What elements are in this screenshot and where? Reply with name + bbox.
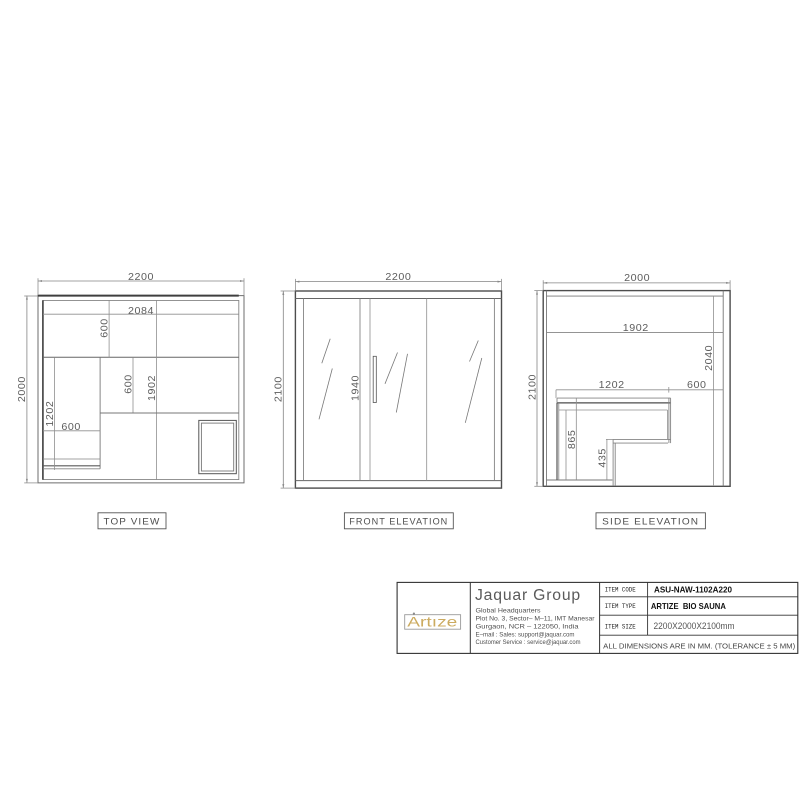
svg-text:600: 600 — [100, 318, 111, 338]
svg-text:E–mail : Sales: support@jaquar: E–mail : Sales: support@jaquar.com — [476, 631, 575, 638]
svg-text:Global Headquarters: Global Headquarters — [476, 608, 542, 615]
svg-text:2200X2000X2100mm: 2200X2000X2100mm — [654, 621, 735, 631]
svg-text:1202: 1202 — [599, 380, 625, 391]
svg-text:2084: 2084 — [128, 306, 154, 317]
svg-text:ASU-NAW-1102A220: ASU-NAW-1102A220 — [654, 585, 732, 595]
svg-text:FRONT ELEVATION: FRONT ELEVATION — [349, 517, 448, 527]
svg-text:2200: 2200 — [385, 272, 411, 283]
svg-text:TOP VIEW: TOP VIEW — [104, 517, 161, 527]
svg-text:Jaquar Group: Jaquar Group — [475, 587, 581, 604]
svg-text:Artıze: Artıze — [407, 614, 457, 630]
svg-text:1940: 1940 — [350, 375, 361, 401]
svg-text:2100: 2100 — [527, 374, 538, 400]
svg-text:Plot No. 3, Sector– M–11, IMT: Plot No. 3, Sector– M–11, IMT Manesar — [476, 616, 596, 623]
svg-text:SIDE ELEVATION: SIDE ELEVATION — [602, 517, 699, 527]
svg-text:ITEM SIZE: ITEM SIZE — [605, 624, 636, 631]
svg-text:2000: 2000 — [624, 273, 650, 284]
svg-text:1902: 1902 — [623, 323, 649, 334]
svg-text:1902: 1902 — [147, 375, 158, 401]
svg-text:ITEM CODE: ITEM CODE — [605, 587, 636, 594]
svg-text:865: 865 — [567, 430, 578, 450]
svg-text:2040: 2040 — [704, 345, 715, 371]
svg-text:ALL DIMENSIONS ARE IN MM. (TOL: ALL DIMENSIONS ARE IN MM. (TOLERANCE ± 5… — [603, 642, 796, 651]
svg-text:2200: 2200 — [128, 272, 154, 283]
svg-text:2100: 2100 — [274, 376, 285, 402]
svg-text:Customer Service : service@jaq: Customer Service : service@jaquar.com — [476, 639, 581, 646]
svg-text:ITEM TYPE: ITEM TYPE — [605, 603, 636, 610]
svg-text:435: 435 — [597, 448, 608, 468]
svg-text:600: 600 — [61, 422, 81, 433]
svg-text:600: 600 — [687, 380, 707, 391]
svg-text:ARTIZE BIO SAUNA: ARTIZE BIO SAUNA — [651, 601, 726, 611]
svg-text:600: 600 — [124, 374, 135, 394]
svg-text:Gurgaon, NCR – 122050, India: Gurgaon, NCR – 122050, India — [476, 623, 579, 630]
svg-text:1202: 1202 — [45, 401, 56, 427]
svg-text:2000: 2000 — [17, 376, 28, 402]
